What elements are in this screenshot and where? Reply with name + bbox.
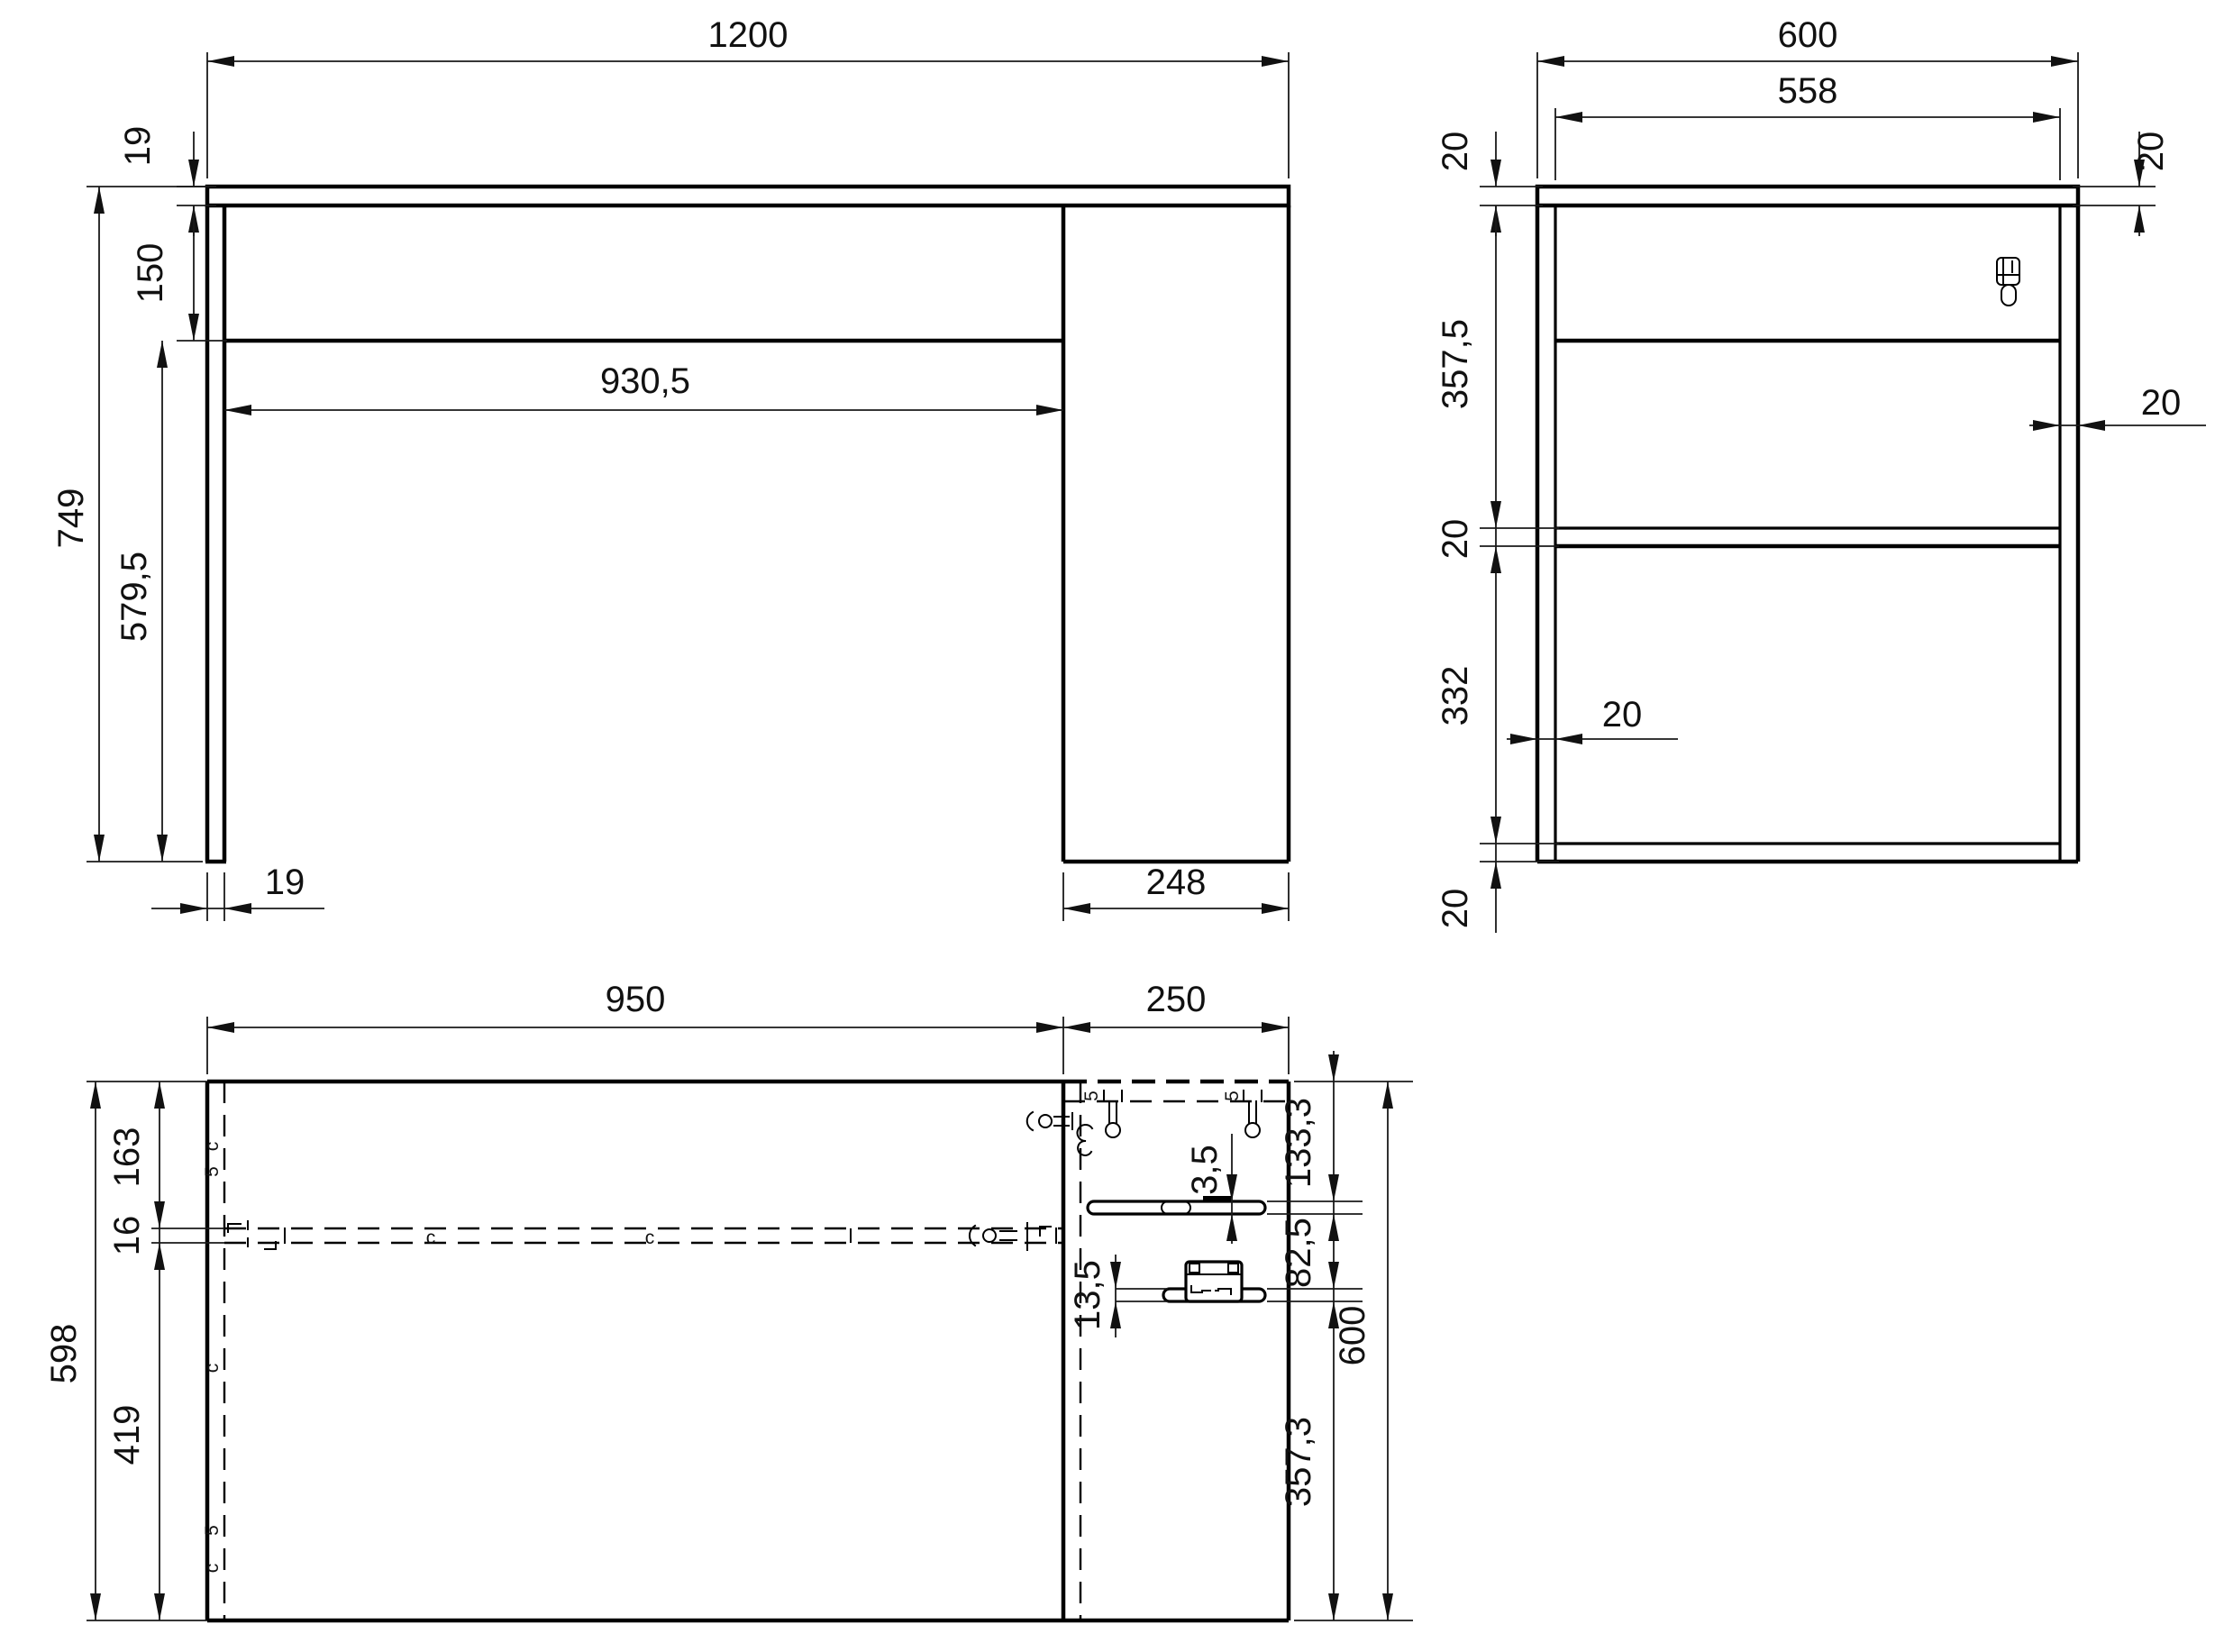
dim-plan-pedestal-span: 250 <box>1146 980 1207 1019</box>
cam-marker: c <box>426 1228 436 1248</box>
plan-view: 5 5 c c c 5 c 5 c <box>44 980 1413 1620</box>
desk-top-side <box>1537 187 2078 205</box>
fastener-cluster-top <box>1027 1112 1072 1130</box>
cam-bolt-icon <box>1104 1091 1122 1137</box>
technical-drawing: 1200 19 150 930,5 749 579,5 19 <box>0 0 2215 1652</box>
plan-outline <box>207 1082 1289 1620</box>
dim-front-leg-clear: 579,5 <box>114 552 154 642</box>
dim-front-top-thickness: 19 <box>118 126 158 167</box>
dim-plan-slot1-offset: 133,3 <box>1279 1098 1318 1188</box>
dim-side-top-left: 20 <box>1436 132 1475 172</box>
cam-marker: c <box>202 1142 223 1152</box>
dim-front-width: 1200 <box>708 15 788 55</box>
slot-1 <box>1088 1201 1265 1214</box>
dim-front-leg-thickness: 19 <box>265 863 305 902</box>
desk-top-front <box>207 187 1289 205</box>
dim-plan-slot1-step: 3,5 <box>1185 1145 1225 1195</box>
front-view: 1200 19 150 930,5 749 579,5 19 <box>51 15 1289 921</box>
dim-plan-front-span: 357,3 <box>1279 1417 1318 1507</box>
dim-plan-slot-gap: 82,5 <box>1279 1218 1318 1288</box>
cam-marker: c <box>645 1228 655 1248</box>
drawing-sheet: 1200 19 150 930,5 749 579,5 19 <box>0 0 2215 1652</box>
cam-bolt-icon <box>1244 1091 1262 1137</box>
dim-side-upper-clear: 357,5 <box>1436 319 1475 409</box>
dim-front-inner-span: 930,5 <box>600 361 690 401</box>
drawer-bracket-icon <box>1186 1262 1242 1301</box>
dim-plan-depth-left: 598 <box>44 1324 84 1384</box>
rail-hidden-lines <box>224 1228 1063 1243</box>
dim-side-depth: 600 <box>1778 15 1838 55</box>
dim-side-left-wall: 20 <box>1602 695 1643 735</box>
fastener-cluster-rail-right <box>970 1223 1056 1250</box>
cam-lock-icon <box>1997 258 2019 306</box>
dim-side-lower-clear: 332 <box>1436 666 1475 726</box>
fastener-cluster-rail-left <box>228 1221 285 1249</box>
dim-plan-slot-height: 13,5 <box>1068 1260 1107 1330</box>
dim-side-right-wall: 20 <box>2141 383 2182 423</box>
dim-front-apron: 150 <box>131 243 170 304</box>
dim-side-bottom-thickness: 20 <box>1436 889 1475 929</box>
dim-plan-rail-thickness: 16 <box>107 1216 147 1256</box>
dowel-marker: 5 <box>202 1525 223 1536</box>
dim-side-inner-depth: 558 <box>1778 71 1838 111</box>
dim-front-height: 749 <box>51 488 91 549</box>
dowel-marker: 5 <box>202 1166 223 1177</box>
dim-side-shelf-thickness: 20 <box>1436 519 1475 560</box>
cam-marker: c <box>202 1364 223 1374</box>
dim-front-pedestal-width: 248 <box>1146 863 1207 902</box>
dim-plan-front-offset: 419 <box>107 1405 147 1465</box>
dim-plan-depth-right: 600 <box>1333 1306 1372 1366</box>
dowel-marker: 5 <box>1222 1091 1243 1101</box>
dim-side-top-right: 20 <box>2131 132 2171 172</box>
dowel-marker: 5 <box>1081 1091 1102 1101</box>
dim-plan-left-span: 950 <box>606 980 666 1019</box>
dim-plan-back-offset: 163 <box>107 1127 147 1188</box>
cam-marker: c <box>202 1564 223 1574</box>
side-view: 600 558 20 20 357,5 20 332 20 20 <box>1436 15 2206 933</box>
